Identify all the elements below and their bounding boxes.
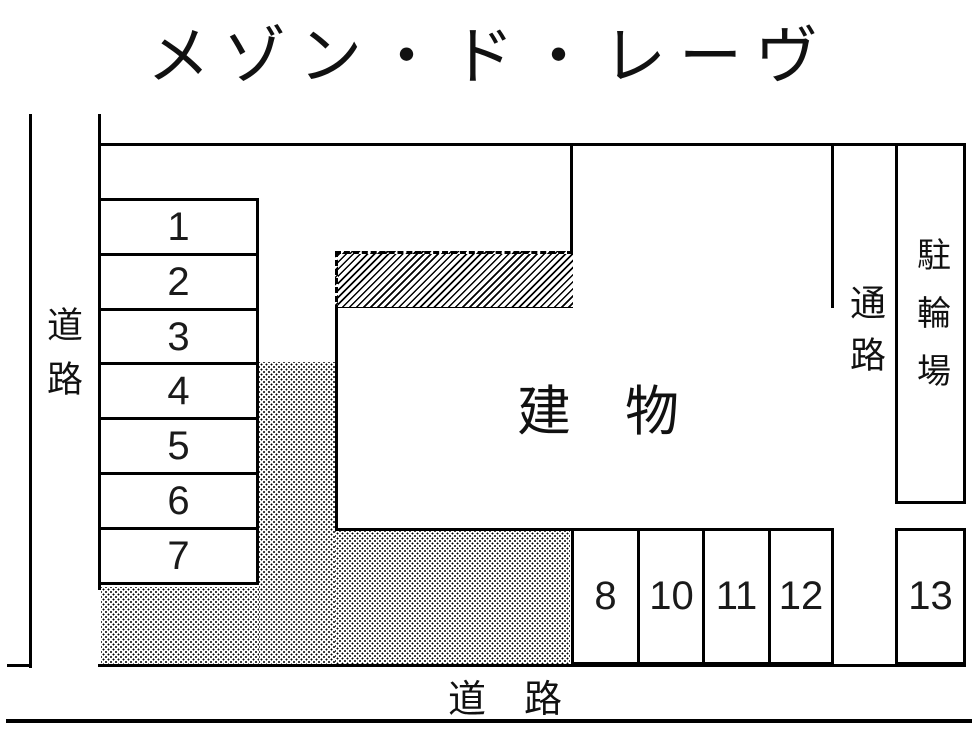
bicycle-parking-box: 駐輪場 [895, 143, 966, 504]
parking-space-10: 10 [637, 528, 706, 665]
plot-bottom-line [98, 664, 966, 667]
parking-space-13: 13 [895, 528, 966, 665]
parking-space-8: 8 [571, 528, 640, 665]
left-road-outer-line [29, 114, 32, 668]
parking-space-1: 1 [98, 198, 259, 256]
parking-space-11: 11 [702, 528, 771, 665]
parking-space-number: 12 [779, 574, 824, 619]
gravel-area-left [259, 362, 335, 664]
gravel-area-corner [101, 587, 259, 664]
site-plan: メゾン・ド・レーヴ 道路 1 2 3 4 5 6 7 建 物 通路 駐輪場 8 … [0, 0, 978, 736]
bottom-road-label: 道 路 [32, 668, 978, 723]
parking-space-number: 4 [167, 369, 189, 414]
parking-space-number: 3 [167, 315, 189, 360]
parking-space-number: 5 [167, 424, 189, 469]
parking-space-number: 6 [167, 479, 189, 524]
building-outline: 建 物 [335, 308, 834, 531]
left-road-foot-line [7, 664, 32, 667]
parking-space-number: 11 [716, 574, 758, 619]
plot-top-line [98, 143, 966, 146]
parking-space-6: 6 [98, 472, 259, 530]
building-label: 建 物 [517, 367, 679, 446]
parking-space-7: 7 [98, 527, 259, 585]
left-road-label: 道路 [44, 306, 80, 414]
bicycle-parking-label: 駐輪場 [914, 237, 948, 411]
parking-space-4: 4 [98, 362, 259, 420]
gravel-area-bottom [335, 531, 570, 664]
parking-space-number: 2 [167, 260, 189, 305]
parking-space-number: 8 [594, 574, 616, 619]
parking-space-number: 13 [908, 574, 953, 619]
hatched-overhang-area [335, 251, 573, 311]
parking-space-2: 2 [98, 253, 259, 311]
page-title: メゾン・ド・レーヴ [0, 6, 978, 97]
parking-space-3: 3 [98, 308, 259, 366]
parking-space-number: 7 [167, 534, 189, 579]
parking-space-12: 12 [768, 528, 834, 665]
parking-space-number: 10 [649, 574, 694, 619]
aisle-label: 通路 [847, 284, 883, 388]
parking-space-number: 1 [167, 205, 189, 250]
parking-space-5: 5 [98, 417, 259, 475]
